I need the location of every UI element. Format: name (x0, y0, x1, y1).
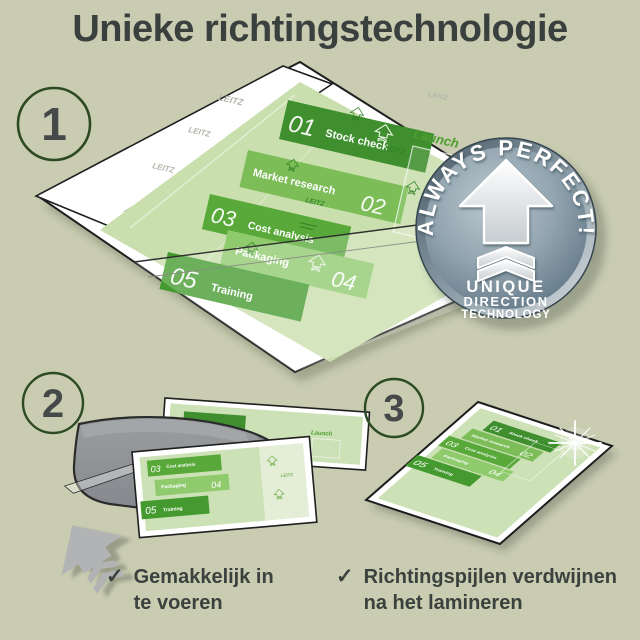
caption-line: Gemakkelijk in (134, 566, 274, 588)
step1-marker-number: 1 (41, 98, 67, 150)
check-icon: ✓ (106, 564, 124, 590)
caption-easy-feed: ✓ Gemakkelijk in te voeren (106, 564, 274, 616)
badge-line-technology: TECHNOLOGY (461, 309, 550, 321)
exit-doc-pale-zone (259, 443, 309, 521)
step2-marker-number: 2 (42, 382, 64, 426)
caption-line: Richtingspijlen verdwijnen (364, 566, 617, 588)
badge-line-direction: DIRECTION (464, 294, 549, 309)
caption-line: te voeren (134, 592, 223, 614)
check-icon: ✓ (336, 564, 354, 590)
infographic-stage: Unieke richtingstechnologie (0, 0, 640, 640)
sparkle-core (572, 440, 577, 445)
band-number: 04 (211, 479, 222, 490)
step3-marker-number: 3 (383, 388, 404, 430)
band-number: 03 (150, 464, 161, 475)
illustration-canvas: LEITZ LEITZ LEITZ LEITZ 01 Stock (0, 0, 640, 640)
caption-arrows-disappear: ✓ Richtingspijlen verdwijnen na het lami… (336, 564, 617, 616)
caption-line: na het lamineren (364, 592, 523, 614)
band-number: 05 (145, 505, 157, 517)
leitz-watermark: LEITZ (428, 91, 449, 102)
